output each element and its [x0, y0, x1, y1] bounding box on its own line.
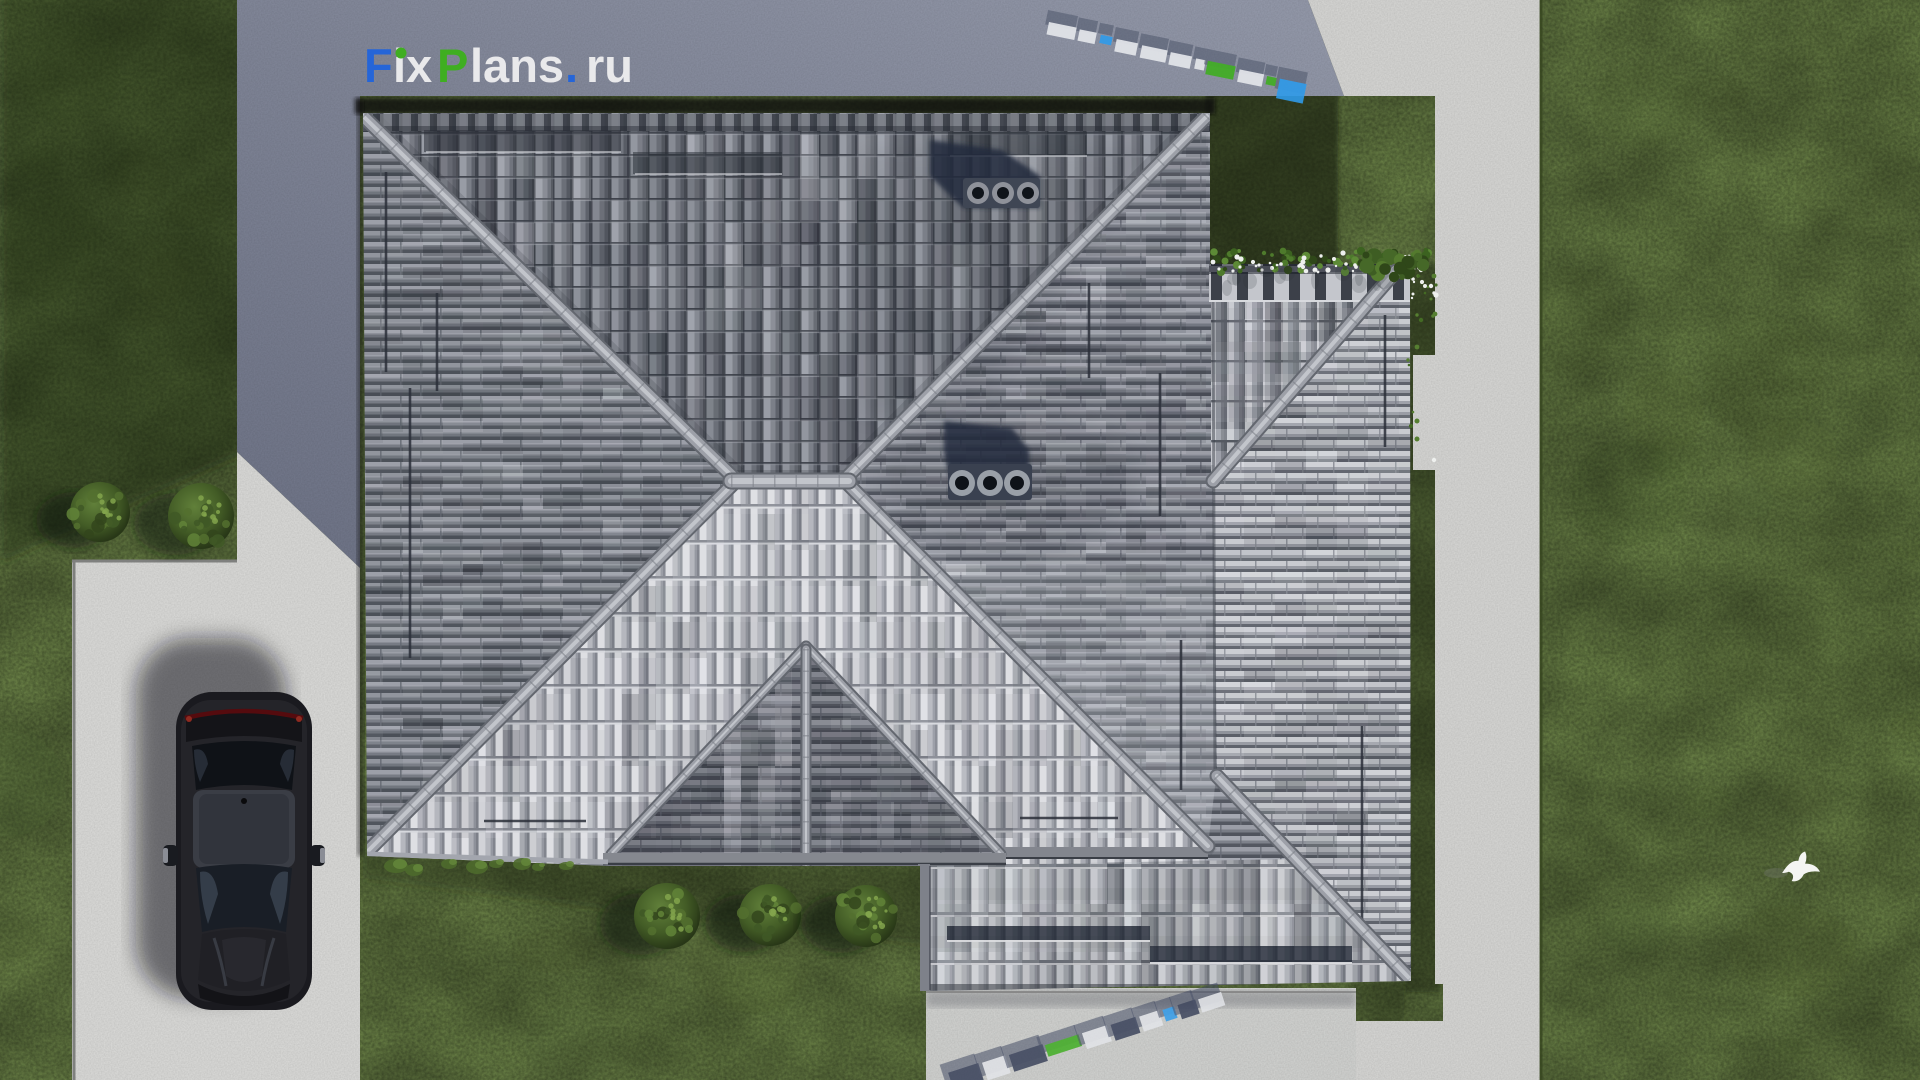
- svg-text:P: P: [437, 39, 468, 92]
- svg-text:ix: ix: [393, 39, 432, 92]
- svg-text:.: .: [565, 39, 578, 92]
- svg-text:lans: lans: [470, 39, 564, 92]
- svg-text:F: F: [364, 39, 393, 92]
- svg-text:ru: ru: [586, 39, 633, 92]
